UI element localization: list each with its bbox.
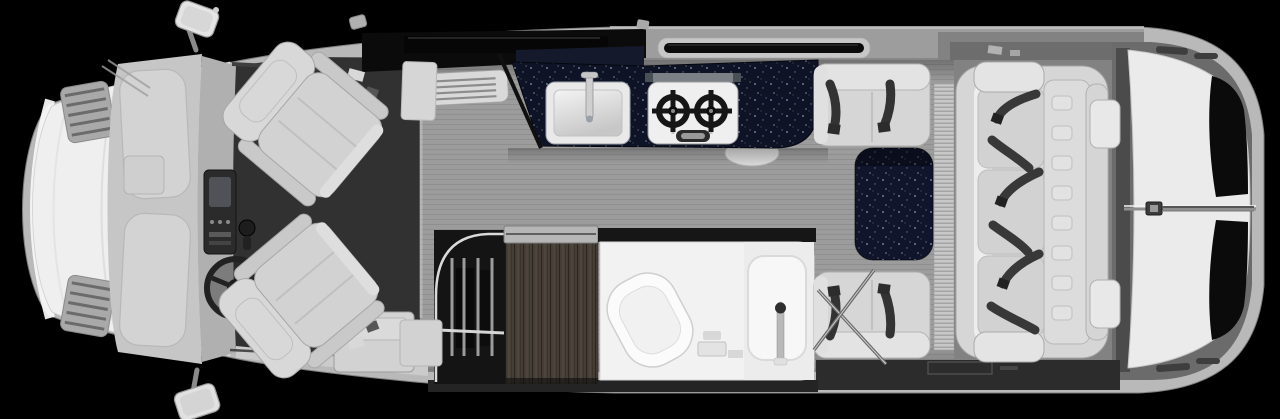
belt-buckle xyxy=(877,121,890,133)
sofa-backrest xyxy=(1044,80,1090,344)
sofa-bolster-top xyxy=(1090,100,1120,148)
hood-vent-top xyxy=(60,80,117,143)
heater-register xyxy=(934,84,954,350)
bath-top-wall xyxy=(598,228,816,242)
windshield-panel-bottom xyxy=(119,212,192,347)
sofa-armrest-bottom xyxy=(974,332,1044,362)
rear-vent-bottom-2 xyxy=(1196,358,1220,364)
two-burner-cooktop xyxy=(645,73,741,144)
rear-section xyxy=(1112,42,1256,380)
floorplan-image xyxy=(0,0,1280,419)
cooktop-hinge xyxy=(645,73,741,82)
faucet xyxy=(586,75,593,119)
infotainment-screen xyxy=(209,177,231,207)
dinette-seat-rear xyxy=(814,272,930,358)
sliding-wood-door xyxy=(504,226,598,384)
wet-bath xyxy=(597,228,816,380)
rearview-mirror-panel xyxy=(124,156,164,194)
sofa-bolster-bottom xyxy=(1090,280,1120,328)
pedestal-table xyxy=(855,148,933,260)
rear-vent-top-2 xyxy=(1194,53,1218,59)
hanging-wardrobe xyxy=(434,230,506,384)
hood-vent-bottom xyxy=(60,274,117,337)
dinette-seat-forward xyxy=(814,64,930,146)
b-pillar-top xyxy=(401,61,437,120)
three-seat-sofa xyxy=(956,62,1120,362)
bath-shelf-item-3 xyxy=(728,350,743,358)
bath-shelf-item-1 xyxy=(698,342,726,356)
belt-buckle xyxy=(827,123,840,135)
sofa-armrest-top xyxy=(974,62,1044,92)
bath-shelf-item-2 xyxy=(703,331,721,340)
gear-shifter xyxy=(239,220,255,236)
shower-wand xyxy=(775,303,786,314)
belt-buckle xyxy=(877,283,890,295)
galley-sink xyxy=(546,72,630,144)
belt-buckle xyxy=(827,285,840,297)
b-pillar-bottom xyxy=(400,320,442,366)
windshield xyxy=(102,54,202,364)
counter-shadow xyxy=(508,148,828,164)
dinette-window xyxy=(658,38,870,58)
